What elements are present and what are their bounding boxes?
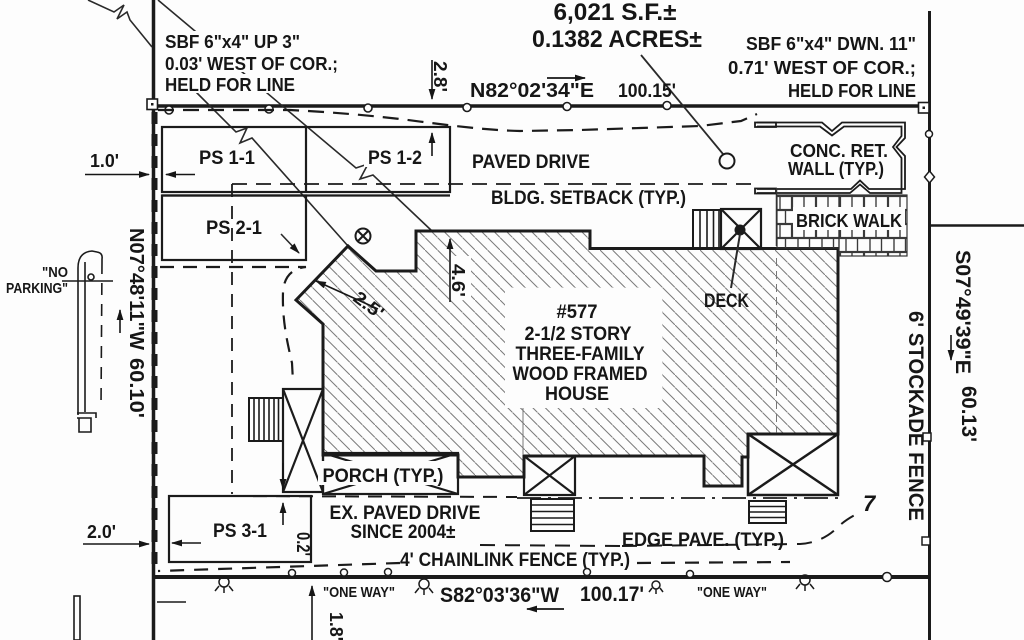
svg-text:0.03' WEST OF COR.;: 0.03' WEST OF COR.; xyxy=(165,54,338,74)
svg-text:4' CHAINLINK FENCE (TYP.): 4' CHAINLINK FENCE (TYP.) xyxy=(400,550,630,571)
svg-text:PS 1-2: PS 1-2 xyxy=(368,148,422,169)
svg-text:60.13': 60.13' xyxy=(957,386,980,442)
svg-text:0.2': 0.2' xyxy=(293,532,313,556)
svg-text:SINCE 2004±: SINCE 2004± xyxy=(351,522,456,543)
svg-text:0.1382 ACRES±: 0.1382 ACRES± xyxy=(532,26,702,53)
svg-text:PAVED DRIVE: PAVED DRIVE xyxy=(472,152,590,173)
svg-text:1.8': 1.8' xyxy=(326,612,346,640)
svg-text:PS 1-1: PS 1-1 xyxy=(199,148,255,169)
svg-text:1.0': 1.0' xyxy=(90,151,119,171)
svg-text:N82°02'34"E: N82°02'34"E xyxy=(470,80,594,102)
svg-text:SBF 6"x4" UP 3": SBF 6"x4" UP 3" xyxy=(165,32,300,52)
svg-text:60.10': 60.10' xyxy=(125,358,147,418)
svg-text:"ONE WAY": "ONE WAY" xyxy=(323,584,395,601)
svg-text:BLDG. SETBACK (TYP.): BLDG. SETBACK (TYP.) xyxy=(491,188,686,209)
svg-text:100.15': 100.15' xyxy=(618,81,676,102)
svg-text:S82°03'36"W: S82°03'36"W xyxy=(440,584,559,607)
svg-text:"ONE WAY": "ONE WAY" xyxy=(697,584,767,601)
svg-text:WOOD FRAMED: WOOD FRAMED xyxy=(513,364,648,385)
svg-text:#577: #577 xyxy=(557,302,598,323)
svg-text:SBF 6"x4" DWN. 11": SBF 6"x4" DWN. 11" xyxy=(746,34,916,54)
svg-text:WALL (TYP.): WALL (TYP.) xyxy=(788,159,884,179)
svg-text:EX. PAVED DRIVE: EX. PAVED DRIVE xyxy=(330,503,481,524)
svg-text:CONC. RET.: CONC. RET. xyxy=(790,141,888,161)
svg-text:HELD FOR LINE: HELD FOR LINE xyxy=(165,75,295,95)
svg-text:HOUSE: HOUSE xyxy=(545,384,609,405)
svg-text:THREE-FAMILY: THREE-FAMILY xyxy=(516,344,645,365)
svg-text:7: 7 xyxy=(863,491,877,516)
svg-text:DECK: DECK xyxy=(704,291,749,312)
svg-text:0.71' WEST OF COR.;: 0.71' WEST OF COR.; xyxy=(728,58,916,78)
svg-text:N07°48'11"W: N07°48'11"W xyxy=(125,228,147,350)
svg-text:2.8': 2.8' xyxy=(430,61,450,92)
svg-text:PARKING": PARKING" xyxy=(6,280,68,297)
svg-text:6,021 S.F.±: 6,021 S.F.± xyxy=(554,0,677,26)
svg-text:4.6': 4.6' xyxy=(448,264,468,297)
svg-text:PORCH (TYP.): PORCH (TYP.) xyxy=(323,466,444,487)
svg-text:HELD FOR LINE: HELD FOR LINE xyxy=(788,81,916,101)
svg-text:EDGE PAVE. (TYP.): EDGE PAVE. (TYP.) xyxy=(622,530,784,551)
svg-text:"NO: "NO xyxy=(42,264,68,281)
svg-text:100.17': 100.17' xyxy=(580,583,644,606)
svg-text:BRICK WALK: BRICK WALK xyxy=(796,211,902,231)
svg-text:PS 3-1: PS 3-1 xyxy=(213,521,267,542)
svg-text:PS 2-1: PS 2-1 xyxy=(206,218,262,239)
svg-text:S07°49'39"E: S07°49'39"E xyxy=(951,250,974,374)
svg-text:6' STOCKADE FENCE: 6' STOCKADE FENCE xyxy=(904,311,927,521)
svg-text:2-1/2 STORY: 2-1/2 STORY xyxy=(525,324,632,345)
svg-text:2.0': 2.0' xyxy=(87,522,116,542)
